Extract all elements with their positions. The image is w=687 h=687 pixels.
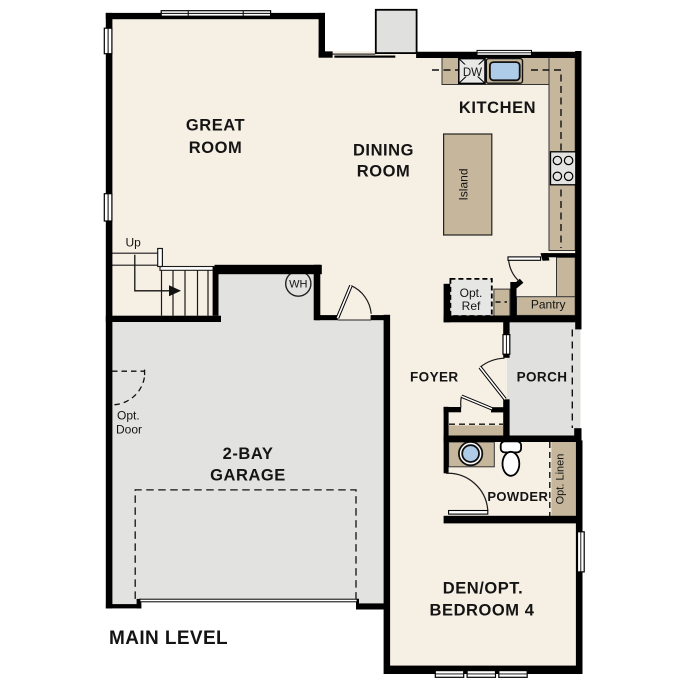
svg-text:Opt.: Opt. — [117, 409, 140, 423]
svg-text:ROOM: ROOM — [189, 139, 243, 157]
svg-text:GARAGE: GARAGE — [210, 467, 286, 485]
svg-text:Opt. Linen: Opt. Linen — [555, 454, 567, 505]
svg-text:MAIN LEVEL: MAIN LEVEL — [109, 628, 228, 649]
svg-text:Pantry: Pantry — [531, 298, 566, 312]
svg-text:FOYER: FOYER — [410, 370, 459, 385]
svg-text:Door: Door — [116, 423, 142, 437]
svg-text:GREAT: GREAT — [186, 117, 245, 135]
svg-text:BEDROOM 4: BEDROOM 4 — [430, 602, 535, 620]
svg-text:DEN/OPT.: DEN/OPT. — [443, 580, 524, 598]
svg-text:Opt.: Opt. — [460, 286, 483, 300]
svg-text:PORCH: PORCH — [517, 370, 568, 385]
svg-text:DINING: DINING — [353, 141, 414, 159]
svg-text:2-BAY: 2-BAY — [223, 445, 274, 463]
svg-text:Ref: Ref — [462, 299, 481, 313]
svg-text:KITCHEN: KITCHEN — [459, 99, 536, 117]
svg-text:WH: WH — [289, 279, 307, 291]
svg-text:Up: Up — [126, 236, 142, 250]
svg-text:POWDER: POWDER — [487, 489, 548, 504]
svg-text:ROOM: ROOM — [357, 162, 411, 180]
svg-text:DW: DW — [463, 67, 482, 79]
svg-text:Island: Island — [457, 168, 471, 200]
